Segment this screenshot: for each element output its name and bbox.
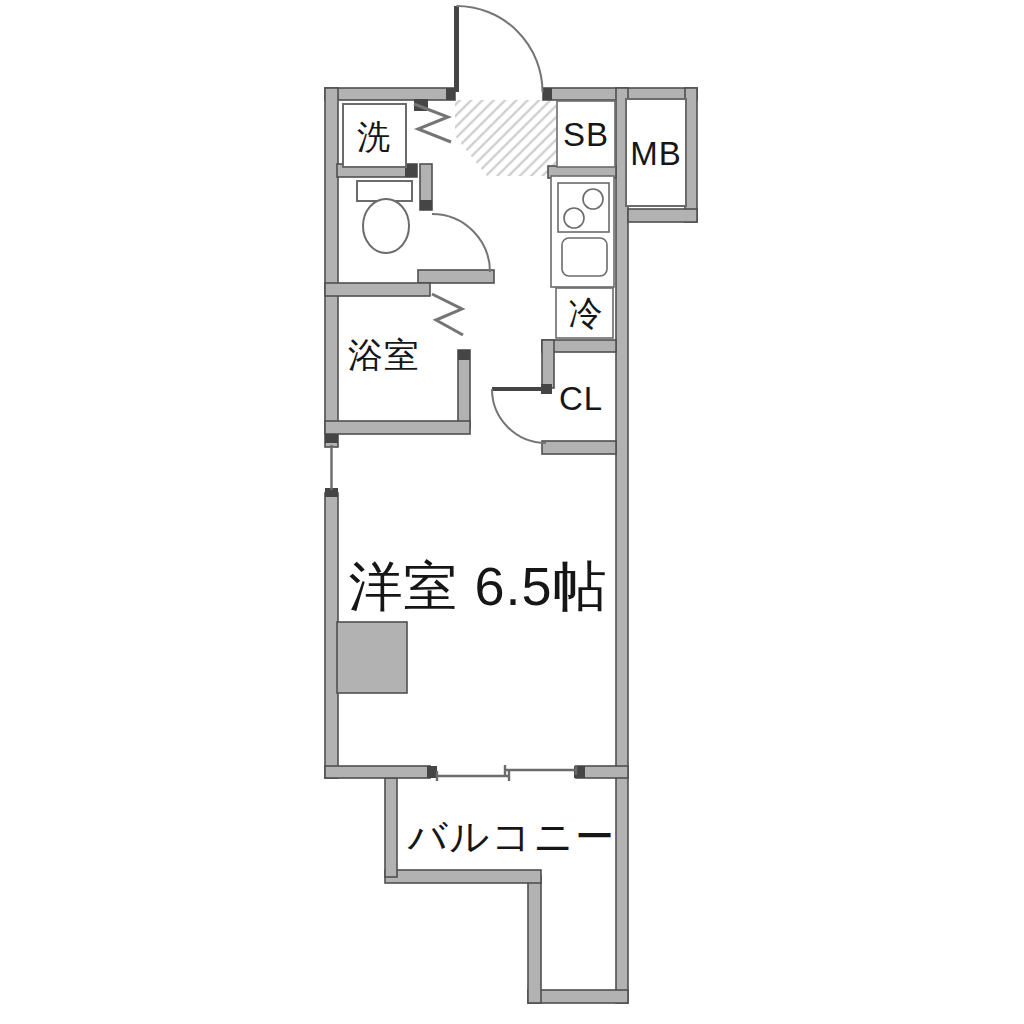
window-balcony-icon (437, 765, 576, 781)
stove-burner-icon (564, 208, 584, 228)
room-label-shoe-box: SB (563, 118, 609, 151)
room-label-bathroom: 浴室 (348, 337, 420, 372)
floor-plan: 洗 SB MB 冷 CL 浴室 洋室 6.5帖 バルコニー (0, 0, 1024, 1024)
room-label-meter-box: MB (630, 137, 682, 170)
floor-plan-drawing (0, 0, 1024, 1024)
toilet-icon (357, 181, 412, 253)
bathroom-folding-door-icon (432, 294, 463, 335)
room-label-laundry: 洗 (357, 120, 391, 153)
pillar (337, 622, 407, 693)
room-label-closet: CL (559, 382, 603, 415)
room-label-balcony: バルコニー (408, 817, 617, 856)
entrance-door-icon (457, 6, 543, 92)
kitchen-counter-icon (551, 176, 614, 287)
stove-burner-icon (583, 189, 603, 209)
room-label-refrigerator: 冷 (569, 296, 604, 330)
room-label-western-room: 洋室 6.5帖 (348, 559, 607, 613)
closet-door-icon (492, 389, 546, 443)
entrance-hatch-area (455, 100, 556, 176)
sink-icon (562, 238, 607, 276)
toilet-door-icon (432, 214, 490, 272)
